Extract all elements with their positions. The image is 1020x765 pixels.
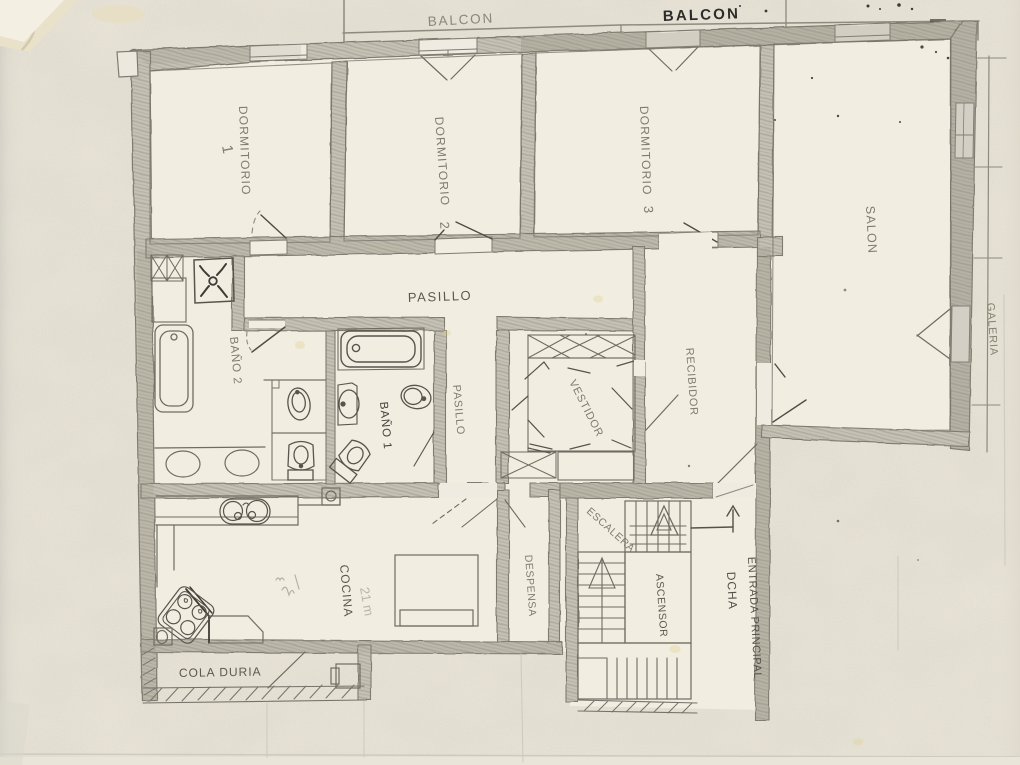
- svg-text:PASILLO: PASILLO: [408, 288, 473, 305]
- svg-text:COLA DURIA: COLA DURIA: [179, 665, 262, 680]
- svg-text:SALON: SALON: [863, 205, 880, 254]
- svg-text:BALCON: BALCON: [663, 5, 741, 25]
- svg-text:DCHA: DCHA: [724, 571, 740, 610]
- svg-text:3: 3: [641, 206, 656, 214]
- svg-text:2: 2: [437, 221, 452, 229]
